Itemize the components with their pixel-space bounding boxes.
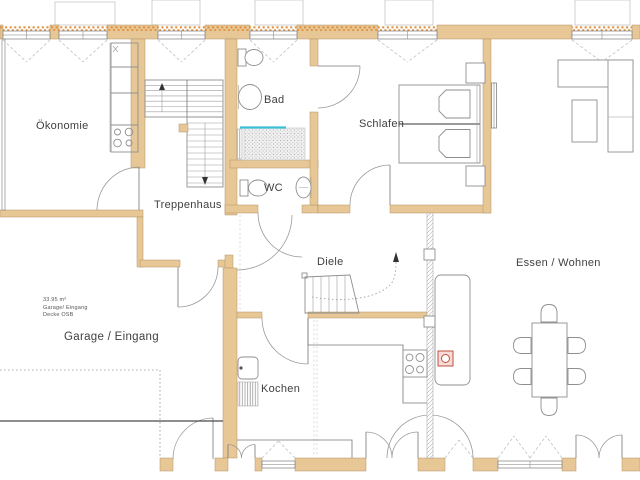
sink-icon: [239, 85, 262, 110]
toilet-icon: [238, 49, 263, 66]
floor-plan: Ökonomie Bad Schlafen Treppenhaus WC Die…: [0, 0, 640, 480]
floor-plan-drawing: [0, 0, 640, 480]
door-kochen: [262, 318, 308, 364]
room-label-okonomie: Ökonomie: [36, 120, 89, 132]
garage-usage-text: Garage/ Eingang: [43, 305, 88, 313]
kitchen-sink-icon: [238, 357, 258, 379]
shower-area: [240, 128, 305, 161]
wc-sink-icon: [296, 177, 311, 198]
stove-icon: [403, 350, 427, 377]
garage-annotation: 33.95 m² Garage/ Eingang Decke OSB: [43, 297, 88, 320]
door-french-kochen: [366, 432, 418, 458]
door-schlafen-entry: [318, 66, 360, 108]
left-exterior-wall: [2, 39, 5, 210]
room-label-wc: WC: [264, 182, 283, 194]
room-label-bad: Bad: [264, 94, 284, 106]
door-treppenhaus: [178, 267, 218, 307]
cellar-stairs-icon: [302, 273, 359, 313]
radiator-icon: [492, 83, 497, 128]
garage-area-text: 33.95 m²: [43, 297, 88, 305]
exterior-window-boxes: [55, 0, 630, 25]
door-garage-rear: [173, 418, 213, 459]
bed-icon: [399, 85, 480, 163]
room-label-diele: Diele: [317, 256, 344, 268]
tiled-stove-icon: [435, 275, 470, 385]
dining-table-icon: [532, 323, 567, 397]
door-wc: [258, 213, 302, 257]
garage-markings: [0, 370, 223, 458]
nightstand: [466, 63, 485, 83]
door-french-wohnen: [576, 435, 622, 458]
garage-ceiling-text: Decke OSB: [43, 312, 88, 320]
room-label-kochen: Kochen: [261, 383, 300, 395]
radiator-icon: [237, 129, 242, 159]
chimney-icon: [438, 351, 453, 366]
walk-line-arrow: [240, 215, 399, 456]
door-schlafen-diele: [350, 165, 390, 205]
door-diele-corridor: [237, 215, 292, 270]
radiator-icon: [238, 382, 258, 406]
room-label-garage-eingang: Garage / Eingang: [64, 331, 159, 343]
nightstand: [466, 166, 485, 186]
door-okonomie: [97, 167, 139, 210]
room-label-treppenhaus: Treppenhaus: [154, 199, 222, 211]
stairs-icon: [145, 80, 223, 187]
room-label-essen-wohnen: Essen / Wohnen: [516, 257, 601, 269]
glass-partition: [424, 213, 435, 458]
room-label-schlafen: Schlafen: [359, 118, 404, 130]
coffee-table-icon: [572, 100, 597, 142]
